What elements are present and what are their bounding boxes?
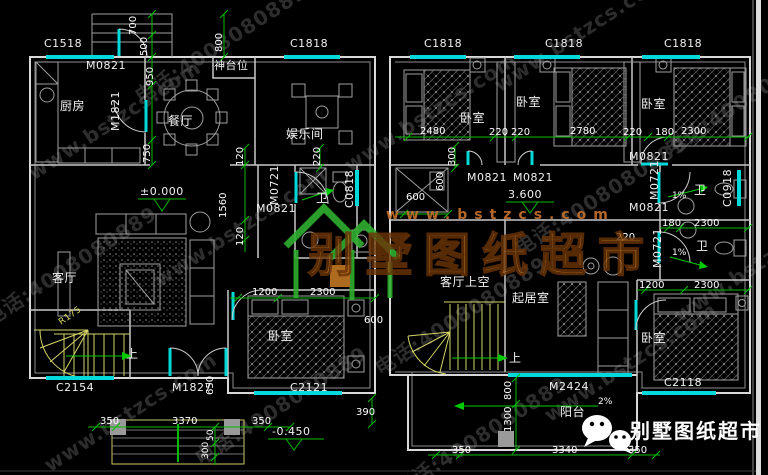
window-label-c1818: C1818: [290, 38, 328, 49]
room-label-family: 起居室: [512, 292, 550, 304]
room-label-bedroom: 卧室: [268, 330, 293, 342]
room-label-bedroom-d: 卧室: [641, 332, 666, 344]
wechat-icon: [582, 415, 632, 454]
door-label-m0721a: M0721: [649, 160, 660, 200]
dim-3340: 3340: [552, 446, 577, 456]
room-label-entertainment: 娱乐间: [286, 128, 324, 140]
window-label-c0818: C0818: [344, 170, 355, 208]
window-label-c0918: C0918: [722, 169, 733, 207]
dim-2300: 2300: [694, 219, 719, 229]
dim-2300: 2300: [310, 288, 335, 298]
room-label-bath-b: 卫: [696, 240, 709, 252]
window-label-c1518: C1518: [44, 38, 82, 49]
dim-120: 120: [236, 227, 246, 246]
dim-2780: 2780: [570, 127, 595, 137]
window-label-c1818a: C1818: [424, 38, 462, 49]
room-label-dining: 餐厅: [168, 115, 193, 127]
dim-350: 350: [252, 417, 271, 427]
room-label-bath-a: 卫: [694, 184, 707, 196]
dim-180: 180: [662, 219, 681, 229]
door-label-m0821: M0821: [86, 60, 126, 71]
stair-up-label: 上: [126, 348, 139, 360]
column: [498, 431, 514, 447]
dim-120: 120: [236, 147, 246, 166]
dim-600: 600: [436, 172, 446, 191]
room-label-bedroom-c: 卧室: [641, 98, 666, 110]
dim-700: 700: [129, 16, 139, 35]
door-label-m1821: M1821: [110, 91, 121, 131]
slope-1pct: 1%: [672, 249, 686, 258]
room-label-bedroom-a: 卧室: [460, 112, 485, 124]
room-label-living: 客厅: [52, 272, 77, 284]
door-label-m0721: M0721: [269, 165, 280, 205]
room-label-bath: 卫: [316, 192, 329, 204]
door-label-m0821d: M0821: [629, 202, 669, 213]
dim-220: 220: [623, 128, 642, 138]
dim-800: 800: [215, 33, 225, 52]
stair-up-label: 上: [509, 352, 522, 364]
dim-600: 600: [364, 316, 383, 326]
dim-2480: 2480: [420, 127, 445, 137]
window-label-c1818c: C1818: [664, 38, 702, 49]
footer-brand-text: 别墅图纸超市: [630, 415, 762, 444]
dim-650: 650: [206, 376, 216, 395]
dim-220: 220: [511, 128, 530, 138]
dim-2300: 2300: [694, 281, 719, 291]
sheet-border: [756, 0, 761, 475]
dim-220: 220: [489, 128, 508, 138]
dim-50: 50: [207, 430, 216, 441]
cad-canvas: www.bstzcs.com 电话:4008080889 www.bstzcs.…: [0, 0, 768, 475]
dim-600: 600: [406, 193, 425, 203]
elevation-entrance: -0.450: [272, 426, 310, 437]
dim-300: 300: [448, 147, 458, 166]
window-label-c1818b: C1818: [545, 38, 583, 49]
room-label-altar: 神台位: [214, 60, 249, 71]
dim-180: 180: [655, 128, 674, 138]
room-label-balcony: 阳台: [560, 406, 585, 418]
dim-300: 300: [202, 442, 211, 459]
elevation-zero: ±0.000: [140, 186, 184, 197]
elevation-floor2: 3.600: [508, 189, 542, 200]
logo-brand-text: 别墅图纸超市: [308, 219, 656, 285]
dim-1560: 1560: [219, 193, 229, 218]
stair-floor1: [34, 330, 130, 378]
room-label-kitchen: 厨房: [60, 100, 85, 112]
window-label-c2154: C2154: [56, 382, 94, 393]
dim-350: 350: [452, 446, 471, 456]
dim-1200: 1200: [252, 288, 277, 298]
slope-2pct: 2%: [598, 398, 612, 407]
slope-1pct: 1%: [672, 192, 686, 201]
door-label-m0821a: M0821: [467, 172, 507, 183]
dim-500: 500: [140, 37, 150, 56]
room-label-bedroom-b: 卧室: [516, 96, 541, 108]
dim-220: 220: [313, 147, 323, 166]
dim-750: 750: [143, 144, 153, 163]
dim-350: 350: [628, 446, 647, 456]
dim-950: 950: [146, 67, 156, 86]
door-label-m2424: M2424: [549, 381, 589, 392]
dim-350: 350: [100, 417, 119, 427]
dim-2300: 2300: [681, 127, 706, 137]
window-label-c2121: C2121: [290, 382, 328, 393]
dim-800: 800: [504, 381, 514, 400]
door-label-m0821b: M0821: [513, 172, 553, 183]
window-label-c2118: C2118: [664, 377, 702, 388]
stair-floor2: [408, 302, 505, 374]
dim-390: 390: [356, 408, 375, 418]
dim-3370: 3370: [172, 417, 197, 427]
dim-1300: 1300: [504, 407, 514, 432]
